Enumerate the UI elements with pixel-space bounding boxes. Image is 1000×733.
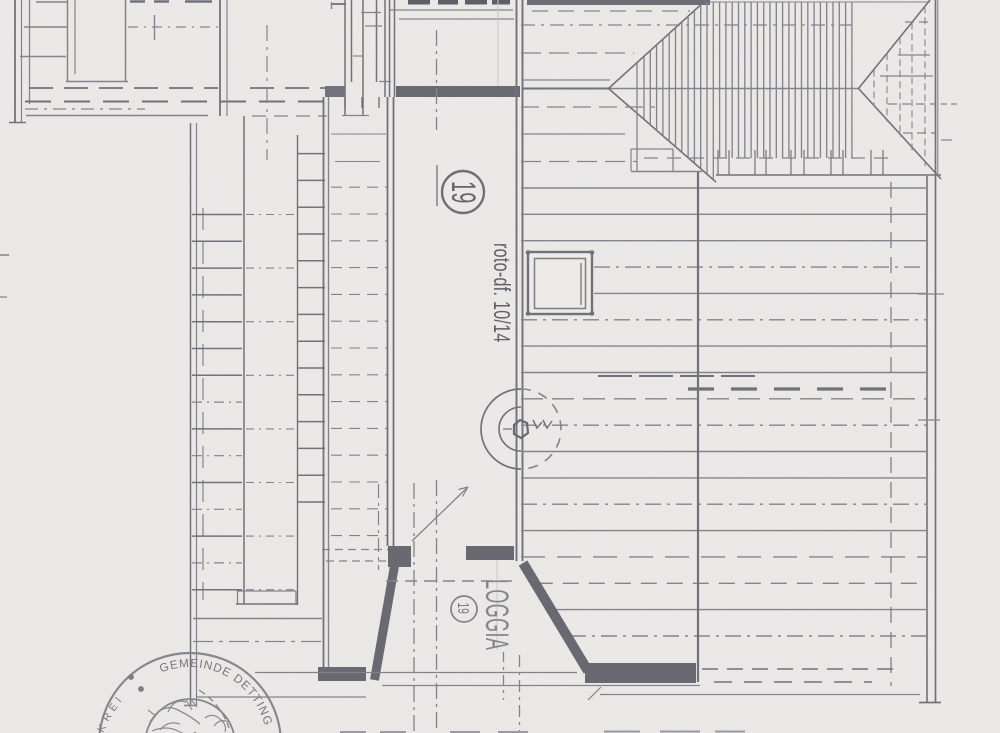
svg-text:19: 19: [445, 181, 483, 204]
svg-text:19: 19: [454, 603, 472, 614]
svg-text:roto-df. 10/14: roto-df. 10/14: [488, 243, 513, 343]
svg-text:LOGGIA: LOGGIA: [479, 579, 514, 650]
